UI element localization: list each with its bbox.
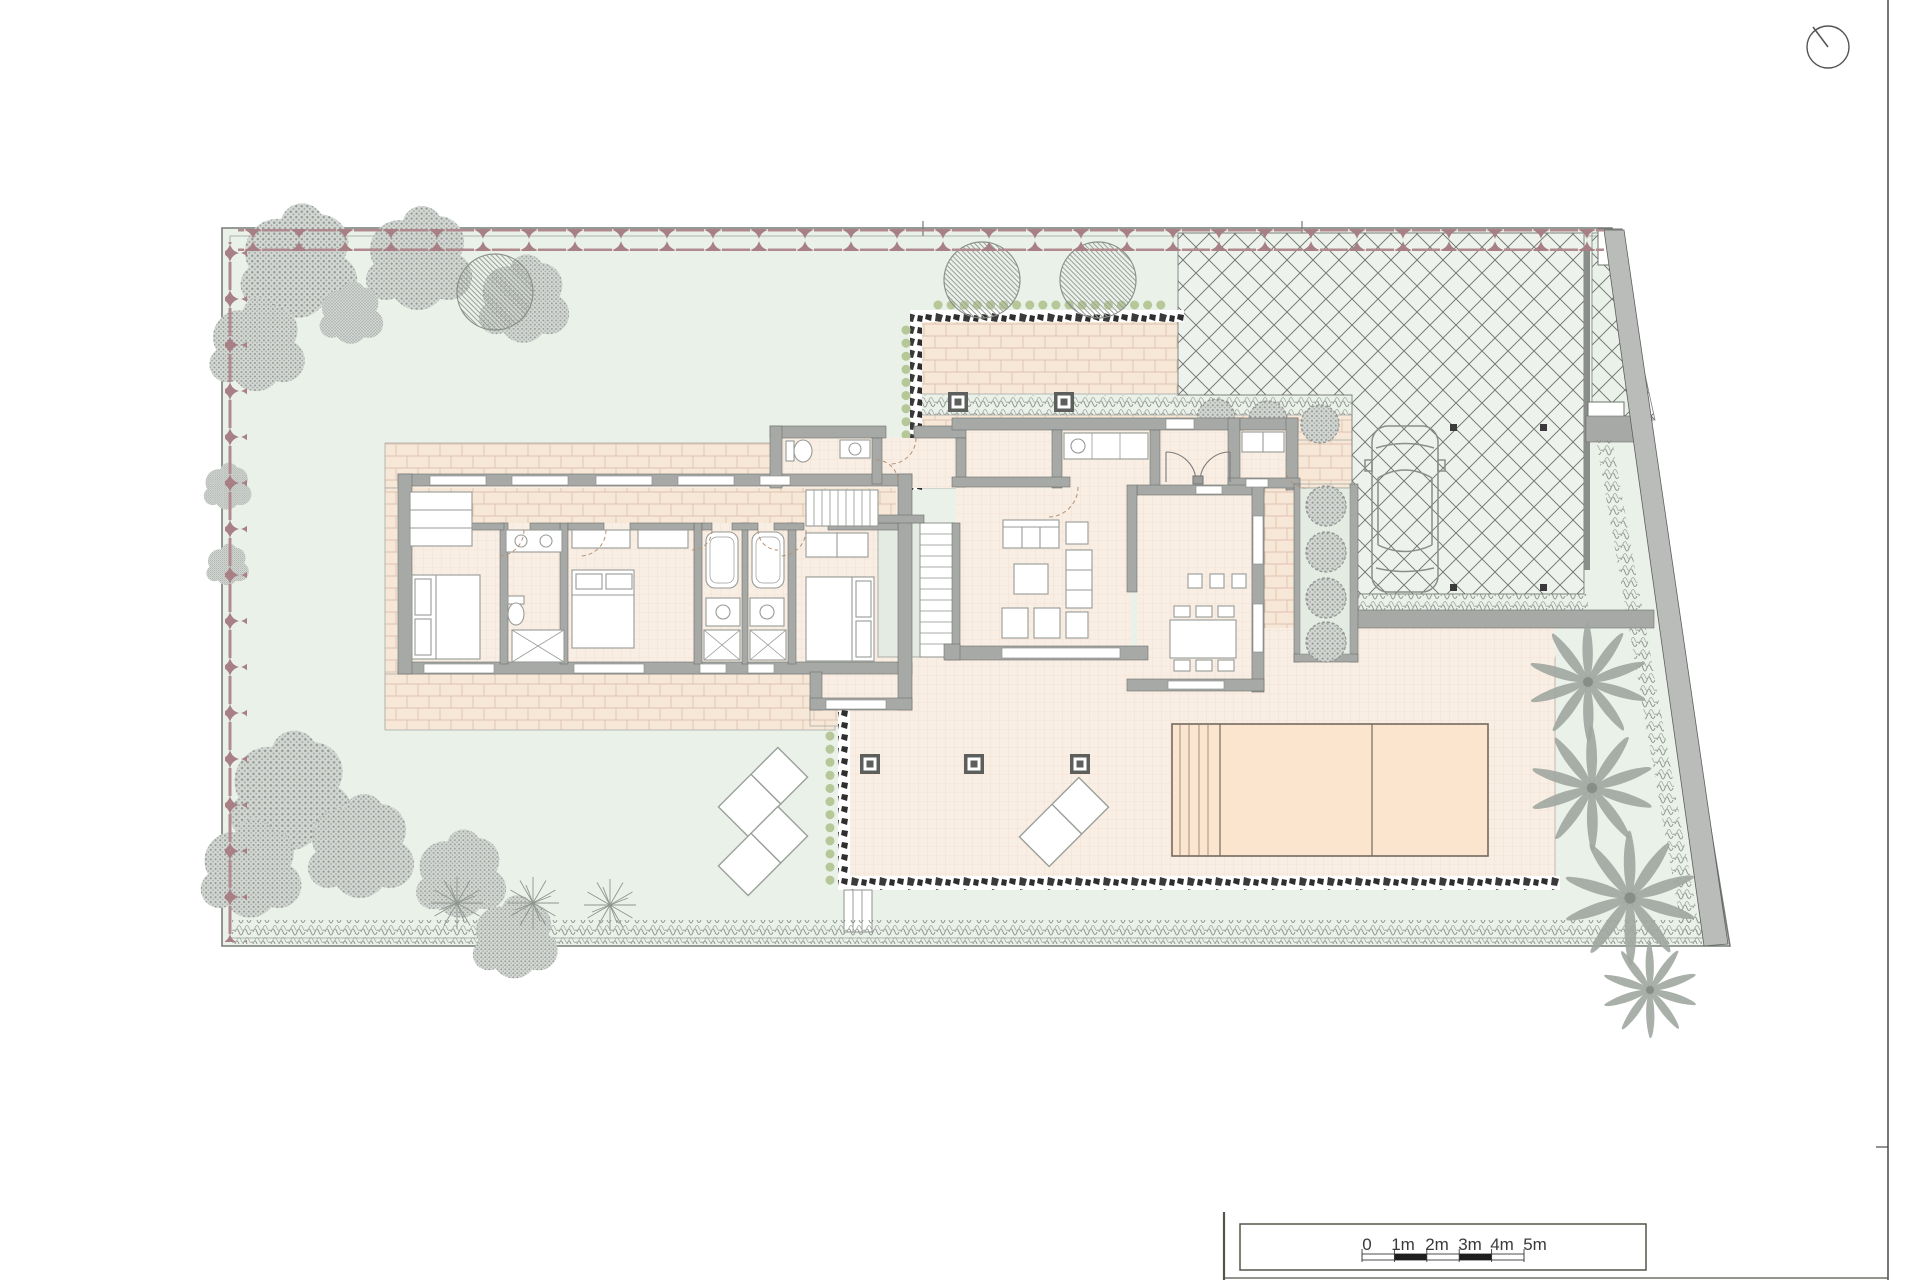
scale-label-4m: 4m [1490,1235,1514,1254]
scale-label-0: 0 [1362,1235,1371,1254]
scale-bar: 0 1m 2m 3m 4m 5m [1240,1224,1646,1270]
dining-table [1170,620,1236,658]
pantry-counter [1064,433,1148,459]
chaise [1066,550,1092,608]
bed-double [572,570,634,648]
basin [760,605,774,619]
basin [540,535,552,547]
door-threshold [1193,476,1203,484]
stool [1210,574,1224,588]
wardrobe [410,492,472,546]
pool [1172,724,1488,856]
drawing-sheet: 0 1m 2m 3m 4m 5m [0,0,1920,1280]
entry-courtyard-paving [918,316,1178,394]
chair [1196,606,1212,617]
coffee-table [1014,564,1048,594]
hedge-strip-north [918,395,1352,415]
courtyard-stone-edge-top [912,310,1184,322]
chair [1174,606,1190,617]
staircase-down [920,523,954,657]
terrace-south-stone-edge [838,876,1560,890]
bedroom3-extension-floor [820,674,900,700]
planter [1300,486,1350,662]
hedge-strip-driveway-south [1358,594,1588,610]
vanity-counter [506,530,562,552]
bed-double [806,577,874,661]
flower-hedge-left [225,242,247,942]
basin [515,535,527,547]
toilet [786,441,794,461]
chair [1218,606,1234,617]
scale-label-3m: 3m [1458,1235,1482,1254]
flower-hedge-top [238,229,1604,251]
stool [1232,574,1246,588]
hedge-south-boundary [232,920,1702,944]
living-room-set [1002,520,1092,638]
chair [1218,660,1234,671]
bush [1301,405,1339,443]
scale-label-2m: 2m [1425,1235,1449,1254]
armchair [1066,522,1088,544]
gate-path-paving [1296,440,1356,484]
staircase-up [806,490,878,526]
chair [1196,660,1212,671]
site-plan-svg: 0 1m 2m 3m 4m 5m [0,0,1920,1280]
north-indicator [1807,26,1849,68]
round-tree [944,242,1020,318]
basin [716,605,730,619]
scale-label-5m: 5m [1523,1235,1547,1254]
garden-wall-southeast [1352,610,1654,628]
round-tree [457,254,533,330]
tree-canopy [366,206,472,310]
side-table [1066,612,1088,638]
armchair [1002,608,1028,638]
stool [1188,574,1202,588]
sofa [1003,520,1059,548]
closet [638,530,688,548]
round-tree [1060,242,1136,318]
bed-double [412,575,480,659]
south-apron-paving [385,674,835,730]
armchair [1034,608,1060,638]
compass-needle-icon [1813,27,1828,47]
chair [1174,660,1190,671]
